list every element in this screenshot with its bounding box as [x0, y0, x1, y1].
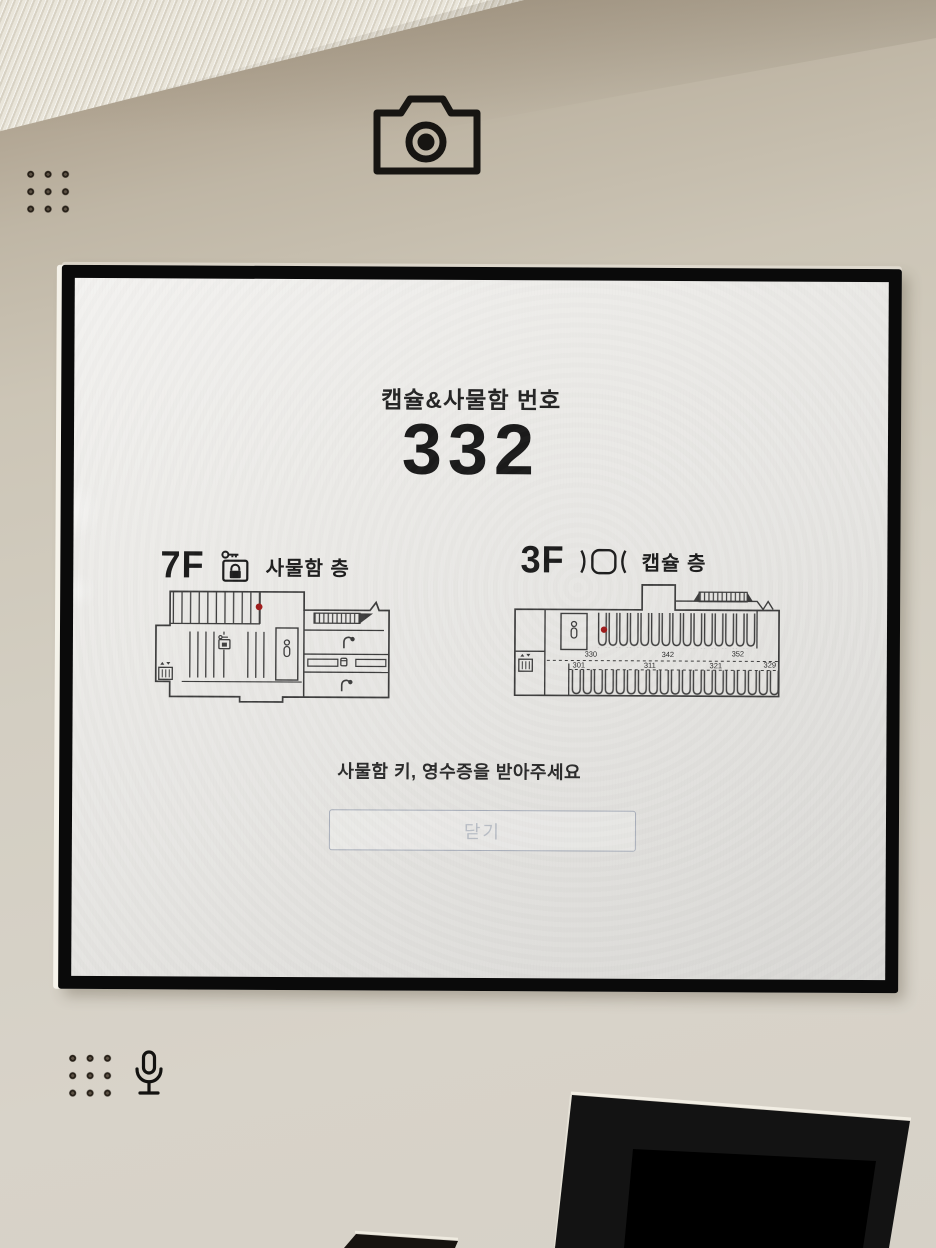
floor-section-3f-header: 3F 캡슐 층: [519, 539, 706, 583]
location-marker-3f: [601, 626, 607, 632]
shower-icon: [344, 637, 355, 648]
speaker-holes: [20, 165, 72, 217]
floor-type-label-3f: 캡슐 층: [642, 547, 707, 576]
locker-key-icon: [217, 548, 255, 584]
receipt-key-slot: [545, 1088, 936, 1248]
floor-map-7f: [152, 585, 393, 706]
screen-bezel: 캡슐&사물함 번호 332 7F 사물함 층: [58, 265, 902, 993]
floor-type-label-7f: 사물함 층: [266, 552, 350, 581]
elevator-icon: [159, 662, 173, 679]
close-button[interactable]: 닫기: [329, 809, 636, 852]
capsule-range-label: 311: [644, 661, 656, 670]
floor-label-3f: 3F: [520, 539, 564, 582]
screen-content: 캡슐&사물함 번호 332 7F 사물함 층: [71, 278, 889, 980]
bottom-slot: [330, 1224, 460, 1248]
assigned-number: 332: [74, 412, 868, 488]
capsule-range-label: 342: [662, 650, 675, 659]
floor-label-7f: 7F: [160, 544, 204, 587]
camera-icon: [366, 86, 488, 182]
capsule-range-label: 352: [732, 649, 745, 658]
capsule-icon: [577, 547, 631, 575]
capsule-range-label: 329: [764, 660, 777, 669]
shower-icon: [342, 680, 353, 691]
mic-holes: [62, 1049, 114, 1101]
screen-reflection: [71, 468, 122, 618]
capsule-range-label: 301: [573, 660, 586, 669]
floor-section-7f-header: 7F 사물함 층: [159, 544, 350, 588]
capsule-range-label: 321: [710, 661, 723, 670]
toilet-icon: [341, 658, 347, 666]
instruction-message: 사물함 키, 영수증을 받아주세요: [72, 756, 846, 786]
floor-map-3f: 330 342 352 301 311 321 329: [505, 581, 791, 702]
location-marker-7f: [256, 603, 263, 610]
capsule-range-label: 330: [585, 650, 598, 659]
elevator-icon: [519, 654, 533, 671]
microphone-icon: [130, 1049, 168, 1101]
